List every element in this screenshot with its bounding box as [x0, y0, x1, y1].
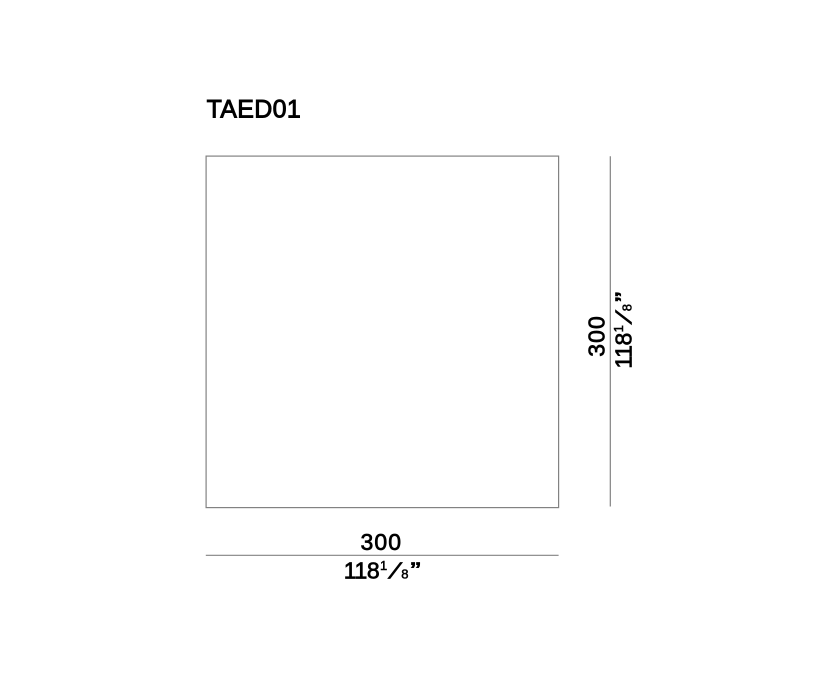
- svg-text:1: 1: [611, 325, 626, 332]
- svg-text:1: 1: [380, 558, 387, 573]
- svg-text:”: ”: [610, 292, 636, 302]
- svg-text:118: 118: [344, 558, 379, 584]
- svg-text:300: 300: [360, 529, 402, 555]
- svg-text:300: 300: [583, 315, 609, 357]
- svg-text:118: 118: [611, 333, 637, 368]
- svg-text:8: 8: [620, 304, 635, 311]
- svg-text:”: ”: [410, 557, 420, 583]
- svg-text:8: 8: [401, 567, 408, 582]
- svg-text:TAED01: TAED01: [207, 96, 301, 124]
